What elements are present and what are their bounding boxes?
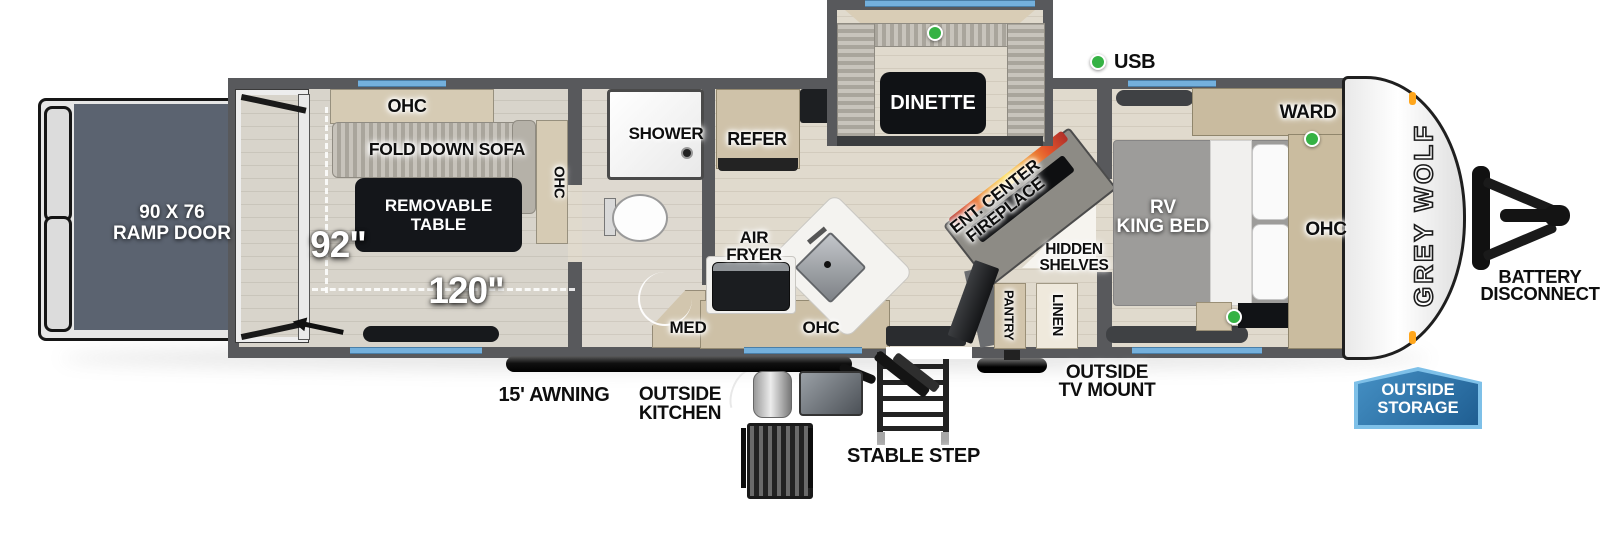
- sink-drain-icon: [824, 261, 831, 268]
- overhead-cabinet-label: OHC: [372, 96, 442, 117]
- awning-bar: [506, 356, 852, 372]
- ramp-door-label: 90 X 76 RAMP DOOR: [92, 202, 252, 244]
- battery-disconnect-label-line2: DISCONNECT: [1469, 285, 1600, 302]
- hidden-shelves-label-line2: SHELVES: [1032, 258, 1116, 274]
- dinette-bench: [1007, 23, 1045, 142]
- front-cap: [1342, 76, 1466, 360]
- grill-handle: [808, 428, 813, 488]
- rear-ramp-door-frame-bar: [298, 94, 310, 340]
- dinette-bench: [837, 23, 875, 142]
- outside-tv-mount-label-line2: TV MOUNT: [1037, 382, 1177, 400]
- outside-kitchen-label: OUTSIDE KITCHEN: [637, 386, 723, 423]
- bedroom-overhead-cabinet-label: OHC: [1291, 219, 1361, 241]
- ladder-rung: [877, 396, 949, 401]
- air-fryer-label-line2: FRYER: [714, 246, 794, 263]
- outside-storage-label-line1: OUTSIDE: [1354, 382, 1482, 400]
- linen-label: LINEN: [1043, 286, 1071, 344]
- usb-legend-icon: [1090, 54, 1106, 70]
- outside-kitchen-label-line1: OUTSIDE: [637, 386, 723, 405]
- pantry-label: PANTRY: [995, 285, 1023, 345]
- removable-table-label-line1: REMOVABLE: [385, 196, 492, 215]
- slide-valance: [845, 10, 1035, 23]
- hidden-shelves-label: HIDDEN SHELVES: [1032, 242, 1116, 273]
- medicine-cabinet-label: MED: [660, 318, 716, 338]
- pillow: [1252, 144, 1290, 220]
- shower-drain-icon: [681, 147, 693, 159]
- dinette-label: DINETTE: [890, 92, 976, 115]
- ramp-rail: [44, 216, 72, 332]
- refrigerator-base: [718, 158, 798, 171]
- air-fryer-range: [712, 262, 790, 311]
- wardrobe-label: WARD: [1268, 102, 1348, 124]
- dinette-slideout: DINETTE: [827, 0, 1053, 146]
- battery-disconnect-label: BATTERY DISCONNECT: [1469, 268, 1600, 302]
- pillow: [1252, 224, 1290, 300]
- fold-down-sofa-label: FOLD DOWN SOFA: [367, 139, 527, 160]
- outside-kitchen-grill: [747, 423, 813, 499]
- hitch-coupler: [1544, 205, 1570, 226]
- ladder-foot: [877, 432, 885, 445]
- outside-tv-mount-label: OUTSIDE TV MOUNT: [1037, 364, 1177, 400]
- toilet: [612, 194, 668, 242]
- ladder-rung: [877, 426, 949, 431]
- garage-bench: [363, 326, 499, 342]
- corner-cabinet: [800, 89, 830, 123]
- window: [1132, 347, 1262, 354]
- usb-legend-label: USB: [1114, 51, 1174, 74]
- clearance-light-icon: [1409, 331, 1416, 344]
- refrigerator-label: REFER: [716, 129, 798, 150]
- outside-storage-label-line2: STORAGE: [1354, 400, 1482, 418]
- hidden-shelves-label-line1: HIDDEN: [1032, 242, 1116, 258]
- outside-kitchen-label-line2: KITCHEN: [637, 405, 723, 424]
- bedroom-bench: [1116, 90, 1194, 106]
- grey-wolf-logo: GREY WOLF: [1406, 108, 1442, 322]
- window: [358, 80, 446, 87]
- dimension-length-label: 120": [416, 270, 516, 312]
- rv-king-bed-label-line1: RV: [1103, 198, 1223, 217]
- window: [1128, 80, 1216, 87]
- usb-indicator-icon: [927, 25, 943, 41]
- slide-edge: [837, 136, 1043, 146]
- ladder-rung: [877, 412, 949, 417]
- wall-garage: [568, 262, 582, 347]
- outside-storage-label: OUTSIDE STORAGE: [1354, 382, 1482, 417]
- outside-tv-mount-plate: [1004, 350, 1020, 360]
- window: [350, 347, 482, 354]
- dinette-table: DINETTE: [880, 72, 986, 134]
- dimension-width-label: 92": [296, 224, 380, 266]
- ramp-door-label-line2: RAMP DOOR: [92, 223, 252, 244]
- window: [744, 347, 862, 354]
- ladder-foot: [941, 432, 949, 445]
- outside-kitchen-griddle: [799, 371, 863, 416]
- removable-table: REMOVABLE TABLE: [355, 178, 522, 252]
- clearance-light-icon: [1409, 92, 1416, 105]
- usb-indicator-icon: [1226, 309, 1242, 325]
- air-fryer-label: AIR FRYER: [714, 229, 794, 263]
- awning-label: 15' AWNING: [498, 384, 610, 407]
- bedroom-cabinet: [1238, 303, 1288, 328]
- grill-handle: [741, 428, 746, 488]
- rv-king-bed-label: RV KING BED: [1103, 198, 1223, 236]
- hitch-a-frame: [1482, 222, 1558, 262]
- kitchen-overhead-cabinet-label: OHC: [786, 318, 856, 338]
- air-fryer-label-line1: AIR: [714, 229, 794, 246]
- ramp-door-label-line1: 90 X 76: [92, 202, 252, 223]
- shower-label: SHOWER: [621, 124, 711, 144]
- rv-king-bed-label-line2: KING BED: [1103, 217, 1223, 236]
- outside-kitchen-sink: [753, 371, 792, 418]
- floorplan-diagram: 90 X 76 RAMP DOOR OHC FOLD DOWN SOFA REM…: [0, 0, 1600, 544]
- overhead-cabinet-label: OHC: [546, 156, 572, 208]
- window: [865, 0, 1035, 7]
- usb-indicator-icon: [1304, 131, 1320, 147]
- stable-step-label: STABLE STEP: [847, 445, 973, 468]
- removable-table-label-line2: TABLE: [411, 215, 466, 234]
- ramp-rail: [44, 106, 72, 222]
